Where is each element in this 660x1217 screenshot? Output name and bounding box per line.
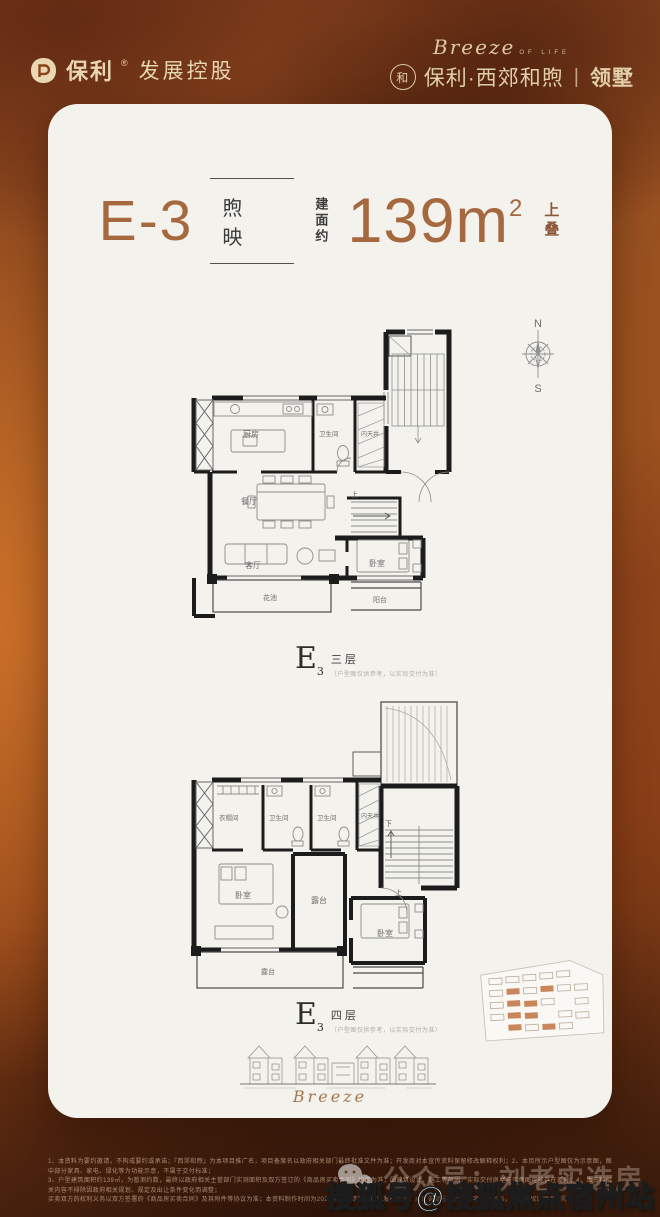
brand-suffix: 发展控股 xyxy=(139,55,235,85)
room-label-terrace2: 露台 xyxy=(261,967,275,976)
poly-logo-icon xyxy=(30,57,57,84)
room-label-dining: 餐厅 xyxy=(241,497,257,506)
stack-tag: 上叠 xyxy=(540,202,561,240)
room-label-bedroom1: 卧室 xyxy=(235,890,251,900)
room-label-bath2: 卫生间 xyxy=(317,813,337,822)
breeze-script-sub: OF LIFE xyxy=(519,50,570,56)
plan1-floor: 三层 xyxy=(331,651,442,667)
breeze-script: Breeze xyxy=(433,35,515,59)
brand-name: 保利 xyxy=(66,54,114,86)
unit-name: 煦映 xyxy=(222,196,268,249)
room-label-kitchen: 厨房 xyxy=(243,429,259,439)
room-label-bath1: 卫生间 xyxy=(269,813,289,822)
area-value: 139m2 xyxy=(347,185,523,257)
area-label: 建面约 xyxy=(311,197,330,245)
compass-south: S xyxy=(534,383,541,395)
project-name-line: 和 保利·西郊和煦 | 领墅 xyxy=(390,62,634,92)
card-footer-script: Breeze xyxy=(48,1087,612,1106)
area-superscript: 2 xyxy=(509,195,523,222)
room-label-cloak: 衣帽间 xyxy=(219,813,239,822)
plan1-letter: E3 xyxy=(295,645,324,686)
room-label-bath: 卫生间 xyxy=(319,429,339,438)
compass-north: N xyxy=(534,318,542,330)
plan2-note: （户型图仅供参考，以实际交付为准） xyxy=(331,1025,442,1034)
room-label-bedroom: 卧室 xyxy=(369,558,385,568)
divider: | xyxy=(572,66,582,89)
room-label-lightwell2: 内天井 xyxy=(361,812,379,820)
floorplan-card: E-3 煦映 建面约 139m2 上叠 N S xyxy=(48,104,612,1118)
unit-name-box: 煦映 xyxy=(210,178,294,264)
room-label-lightwell: 内天井 xyxy=(361,430,379,438)
header-bar: 保利® 发展控股 BreezeOF LIFE 和 保利·西郊和煦 | 领墅 xyxy=(30,40,634,92)
room-label-garden: 花池 xyxy=(263,593,277,602)
breeze-script-line: BreezeOF LIFE xyxy=(433,40,570,60)
room-label-balcony: 阳台 xyxy=(373,595,387,604)
floorplan-third-floor: 厨房 卫生间 内天井 餐厅 客厅 卧室 阳台 花池 上 xyxy=(185,326,465,658)
plan2-floor: 四层 xyxy=(331,1007,442,1023)
stair-up-label2: 上 xyxy=(395,888,402,897)
unit-title-row: E-3 煦映 建面约 139m2 上叠 xyxy=(48,178,612,264)
plan1-note: （户型图仅供参考，以实际交付为准） xyxy=(331,669,442,678)
plan2-letter: E3 xyxy=(295,1001,324,1042)
building-elevation xyxy=(236,1041,441,1093)
compass-icon: N S xyxy=(506,316,570,396)
site-key-plan xyxy=(476,953,608,1046)
seal-icon: 和 xyxy=(390,64,416,90)
project-logo: BreezeOF LIFE 和 保利·西郊和煦 | 领墅 xyxy=(390,40,634,92)
stair-up-label: 上 xyxy=(351,490,358,499)
plan1-caption: E3 三层 （户型图仅供参考，以实际交付为准） xyxy=(295,645,441,686)
poster-page: 保利® 发展控股 BreezeOF LIFE 和 保利·西郊和煦 | 领墅 E-… xyxy=(0,0,660,1217)
room-label-bedroom2: 卧室 xyxy=(377,928,393,938)
room-label-living: 客厅 xyxy=(245,560,261,570)
floorplan-fourth-floor: 衣帽间 卫生间 卫生间 内天井 卧室 露台 卧室 露台 下 上 xyxy=(185,698,465,1008)
registered-mark: ® xyxy=(121,58,128,68)
room-label-terrace1: 露台 xyxy=(311,895,327,905)
poly-developer-logo: 保利® 发展控股 xyxy=(30,54,235,86)
stair-down-label: 下 xyxy=(385,820,392,828)
plan2-caption: E3 四层 （户型图仅供参考，以实际交付为准） xyxy=(295,1001,441,1042)
unit-code: E-3 xyxy=(99,188,194,254)
project-name: 保利·西郊和煦 xyxy=(424,62,564,92)
sohu-watermark: 搜狐号@搜狐焦点宿州站 xyxy=(326,1174,655,1216)
project-suffix: 领墅 xyxy=(590,62,634,92)
